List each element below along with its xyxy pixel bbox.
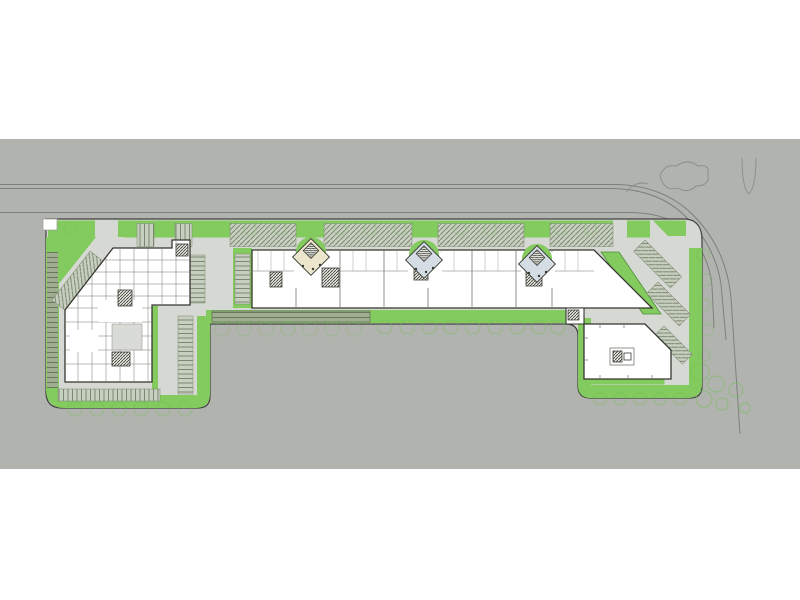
west-building-core-1: [118, 290, 132, 306]
linear-building-core-2: [322, 268, 339, 287]
stall-row-southwest: [58, 389, 160, 401]
green-island-northeast: [627, 221, 650, 238]
linear-building-core-1: [270, 272, 282, 287]
stall-column-court-1: [190, 255, 205, 303]
stall-block-north-west-1: [137, 224, 154, 247]
west-building-core-3: [176, 244, 188, 256]
utility-pad: [43, 219, 57, 230]
connector-stair-core: [568, 310, 579, 320]
west-building-lightwell: [112, 324, 142, 350]
west-building-core-2: [112, 352, 130, 366]
hedge-strip-west: [47, 252, 58, 388]
stall-column-west-lobe: [178, 316, 193, 394]
site-plan-svg: [0, 0, 800, 600]
stall-column-court-2: [235, 254, 250, 304]
green-bar-west: [152, 306, 158, 396]
stall-row-north-3: [438, 224, 524, 247]
hedge-strip-south: [212, 311, 370, 322]
site-plan-image: [0, 0, 800, 600]
